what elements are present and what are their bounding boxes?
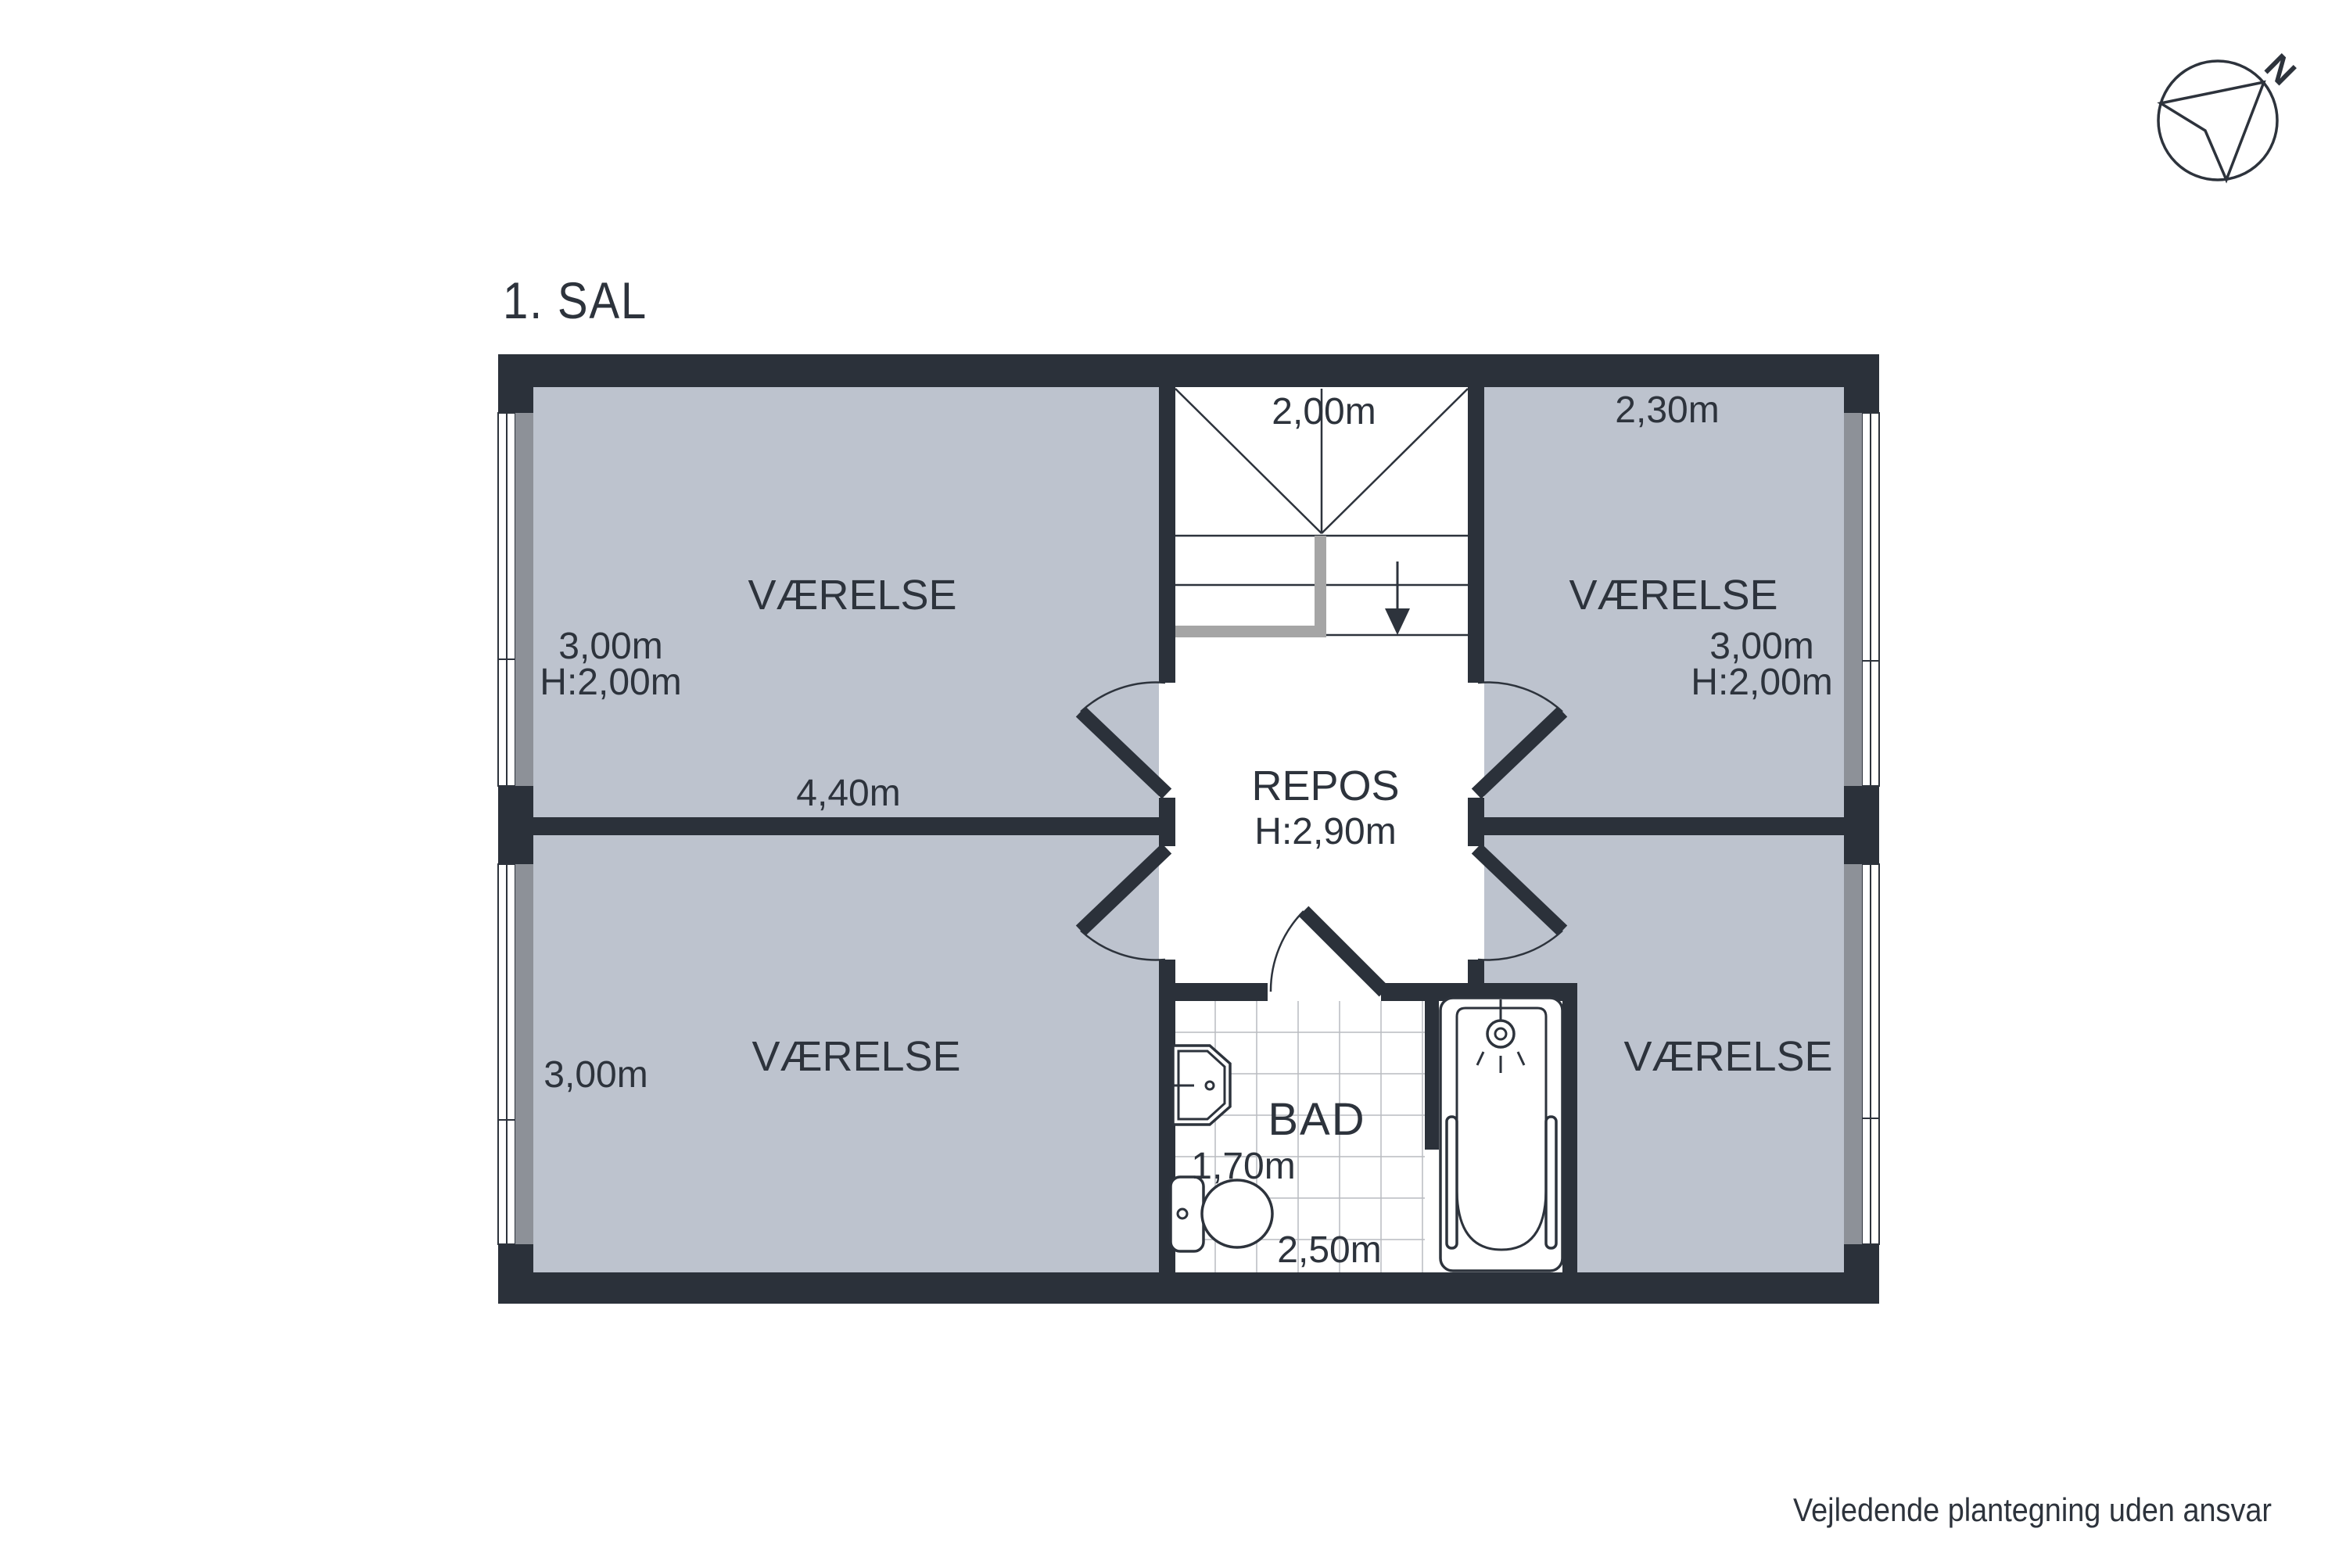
wall-corner-top-right (1844, 354, 1879, 413)
room-label-bottom-right: VÆRELSE (1623, 1033, 1832, 1080)
bathtub (1440, 998, 1562, 1271)
dim-label-bottom-left-width: 3,00m (543, 1054, 647, 1096)
outer-wall-bottom (498, 1272, 1879, 1304)
stair-down-arrow-icon (1385, 562, 1410, 635)
dim-label-top-right-width: 2,30m (1615, 389, 1719, 431)
wall-corner-bottom-left (498, 1244, 533, 1304)
door-bathroom (1271, 911, 1384, 992)
sink (1173, 1046, 1230, 1125)
wall-corner-top-left (498, 354, 533, 413)
compass-icon: N (2158, 46, 2304, 180)
wall-junction-left (498, 786, 533, 864)
shower-partition-wall (1425, 1001, 1439, 1150)
room-label-bathroom: BAD (1268, 1094, 1365, 1145)
wall-corner-bottom-right (1844, 1244, 1879, 1304)
north-label: N (2257, 46, 2304, 93)
room-bottom-right-fill-lower (1577, 983, 1844, 1272)
dim-label-top-right-ceiling: H:2,00m (1691, 662, 1832, 703)
door-stub-right (1468, 798, 1484, 846)
stair-wall-left (1159, 387, 1175, 683)
stair-wall-right (1468, 387, 1484, 683)
mid-wall-right (1484, 817, 1846, 835)
window-left-bottom (498, 864, 533, 1244)
dim-label-top-left-ceiling: H:2,00m (540, 662, 681, 703)
window-right-top (1844, 413, 1879, 786)
floor-plan-page: 1. SAL (0, 0, 2346, 1564)
window-right-bottom (1844, 864, 1879, 1244)
shower-wall-right (1562, 983, 1577, 1272)
window-left-top (498, 413, 533, 786)
dim-label-bathroom-length: 2,50m (1277, 1229, 1381, 1271)
floor-plan: 1. SAL (0, 0, 2346, 1564)
wall-junction-right (1844, 786, 1879, 864)
room-label-top-left: VÆRELSE (748, 572, 956, 619)
stair-rail-vertical (1315, 536, 1326, 633)
mid-wall-left (533, 817, 1159, 835)
bathroom-wall-top-left (1159, 983, 1268, 1001)
disclaimer-text: Vejledende plantegning uden ansvar (1793, 1491, 2272, 1528)
page-title: 1. SAL (503, 271, 647, 329)
dim-label-landing-ceiling: H:2,90m (1254, 811, 1396, 852)
dim-label-top-left-length: 4,40m (796, 773, 900, 814)
room-label-landing: REPOS (1251, 762, 1399, 809)
room-label-bottom-left: VÆRELSE (752, 1033, 960, 1080)
stair-rail-horizontal (1175, 626, 1326, 637)
door-stub-left (1159, 798, 1175, 846)
toilet (1171, 1177, 1272, 1251)
outer-wall-top (498, 354, 1879, 387)
dim-label-bathroom-width: 1,70m (1191, 1146, 1295, 1187)
room-label-top-right: VÆRELSE (1569, 572, 1777, 619)
dim-label-stairs-width: 2,00m (1272, 391, 1376, 432)
